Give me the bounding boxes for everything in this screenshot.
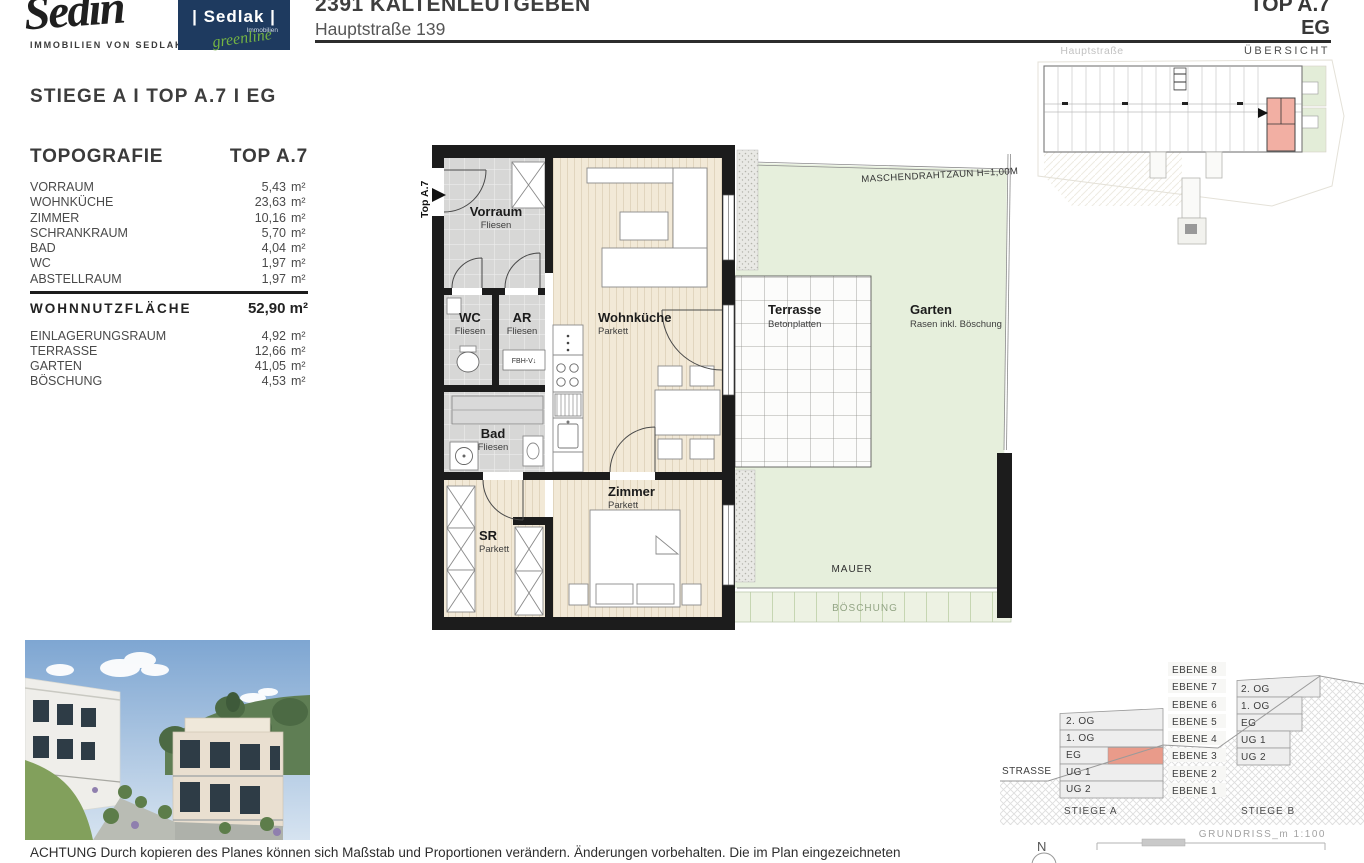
stiege-a-label: STIEGE A xyxy=(1064,806,1118,817)
page-subtitle: Hauptstraße 139 xyxy=(315,19,445,40)
svg-text:Parkett: Parkett xyxy=(479,544,509,555)
svg-text:Parkett: Parkett xyxy=(608,500,638,511)
svg-text:UG 1: UG 1 xyxy=(1241,735,1266,746)
plan-document-page: Sedin IMMOBILIEN VON SEDLAK | Sedlak | I… xyxy=(0,0,1364,863)
nightstand xyxy=(569,584,588,605)
sedin-tagline: IMMOBILIEN VON SEDLAK xyxy=(30,40,183,50)
svg-text:EG: EG xyxy=(1066,750,1081,761)
terrace-patch xyxy=(1302,82,1318,94)
svg-text:2. OG: 2. OG xyxy=(1066,716,1095,727)
table-row: ABSTELLRAUM1,97m² xyxy=(30,272,308,287)
vorraum-label: Vorraum xyxy=(470,204,523,219)
svg-text:EBENE 5: EBENE 5 xyxy=(1172,717,1217,728)
entry-label: Top A.7 xyxy=(420,181,431,218)
table-row: SCHRANKRAUM5,70m² xyxy=(30,226,308,241)
svg-text:UG 2: UG 2 xyxy=(1066,784,1091,795)
bad-label: Bad xyxy=(481,426,506,441)
strasse-label: STRASSE xyxy=(1002,766,1051,777)
wardrobe xyxy=(512,162,545,208)
header-rule xyxy=(315,40,1331,43)
site-overview-map xyxy=(1032,56,1364,254)
svg-text:Betonplatten: Betonplatten xyxy=(768,319,821,330)
extra-area-list: EINLAGERUNGSRAUM4,92m² TERRASSE12,66m² G… xyxy=(30,329,308,390)
svg-text:EBENE 4: EBENE 4 xyxy=(1172,734,1217,745)
scale-bar xyxy=(1097,839,1325,850)
svg-text:1. OG: 1. OG xyxy=(1066,733,1095,744)
level-section-diagram: EBENE 8 EBENE 7 EBENE 6 EBENE 5 EBENE 4 … xyxy=(1000,653,1364,863)
terrace-patch xyxy=(1302,116,1318,128)
highlighted-level-eg xyxy=(1108,748,1163,765)
svg-text:UG 2: UG 2 xyxy=(1241,752,1266,763)
svg-text:EBENE 7: EBENE 7 xyxy=(1172,682,1217,693)
table-row: EINLAGERUNGSRAUM4,92m² xyxy=(30,329,308,344)
room-area-list: VORRAUM5,43m² WOHNKÜCHE23,63m² ZIMMER10,… xyxy=(30,180,308,287)
svg-text:Fliesen: Fliesen xyxy=(455,326,486,337)
scale-label: GRUNDRISS_m 1:100 xyxy=(1199,829,1326,840)
svg-text:UG 1: UG 1 xyxy=(1066,767,1091,778)
svg-text:Fliesen: Fliesen xyxy=(507,326,538,337)
svg-text:Fliesen: Fliesen xyxy=(478,442,509,453)
nightstand xyxy=(682,584,701,605)
table-row: ZIMMER10,16m² xyxy=(30,211,308,226)
north-compass-icon: N xyxy=(1032,839,1056,863)
terrasse-label: Terrasse xyxy=(768,302,821,317)
svg-text:1. OG: 1. OG xyxy=(1241,701,1270,712)
ar-floor xyxy=(499,295,545,385)
sofa-seat xyxy=(602,248,707,287)
table-row: VORRAUM5,43m² xyxy=(30,180,308,195)
garden-patch xyxy=(1300,108,1326,152)
topografie-table: TOPOGRAFIE TOP A.7 VORRAUM5,43m² WOHNKÜC… xyxy=(30,146,308,390)
windows xyxy=(723,195,734,585)
building-outline xyxy=(1044,66,1302,152)
svg-text:Rasen inkl. Böschung: Rasen inkl. Böschung xyxy=(910,319,1002,330)
wc-label: WC xyxy=(459,310,481,325)
sedin-logo: Sedin xyxy=(22,0,125,41)
sr-label: SR xyxy=(479,528,498,543)
stiege-heading: STIEGE A I TOP A.7 I EG xyxy=(30,86,277,108)
right-building xyxy=(173,718,283,827)
floorplan: Top A.7 Vorraum Fliesen WC Fliesen AR xyxy=(420,140,1020,635)
sedlak-logo-name: | Sedlak | xyxy=(178,7,290,27)
kitchen-counter xyxy=(553,325,583,472)
table-row: BÖSCHUNG4,53m² xyxy=(30,374,308,389)
table-row: WC1,97m² xyxy=(30,256,308,271)
garten-label: Garten xyxy=(910,302,952,317)
svg-text:Fliesen: Fliesen xyxy=(481,220,512,231)
wohnkueche-label: Wohnküche xyxy=(598,310,671,325)
table-title: TOPOGRAFIE xyxy=(30,146,163,168)
washbasin xyxy=(523,436,543,466)
mauer-label: MAUER xyxy=(831,564,872,575)
svg-text:EBENE 1: EBENE 1 xyxy=(1172,786,1217,797)
page-title: 2391 KALTENLEUTGEBEN xyxy=(315,0,591,17)
svg-text:N: N xyxy=(1037,839,1046,854)
boeschung-label: BÖSCHUNG xyxy=(832,602,898,614)
svg-text:EBENE 8: EBENE 8 xyxy=(1172,665,1217,676)
svg-text:EBENE 3: EBENE 3 xyxy=(1172,751,1217,762)
total-row: WOHNNUTZFLÄCHE 52,90 m² xyxy=(30,294,308,322)
table-unit-col: TOP A.7 xyxy=(230,146,308,168)
svg-text:EBENE 2: EBENE 2 xyxy=(1172,769,1217,780)
gravel-strip xyxy=(737,150,758,270)
table-row: BAD4,04m² xyxy=(30,241,308,256)
svg-text:2. OG: 2. OG xyxy=(1241,684,1270,695)
table-row: TERRASSE12,66m² xyxy=(30,344,308,359)
unit-label: TOP A.7 xyxy=(1250,0,1330,17)
ar-label: AR xyxy=(513,310,532,325)
table-row: GARTEN41,05m² xyxy=(30,359,308,374)
building-rendering-image xyxy=(25,640,310,840)
disclaimer-text: ACHTUNG Durch kopieren des Planes können… xyxy=(30,845,990,860)
fbh-label: FBH-V↓ xyxy=(512,358,537,365)
stiege-b-label: STIEGE B xyxy=(1241,806,1295,817)
zimmer-label: Zimmer xyxy=(608,484,655,499)
gravel-strip xyxy=(735,470,755,582)
sideboard xyxy=(587,168,673,183)
staircase xyxy=(1174,68,1186,90)
sedlak-logo: | Sedlak | Immobilien greenline xyxy=(178,0,290,50)
svg-text:Parkett: Parkett xyxy=(598,326,628,337)
svg-text:EBENE 6: EBENE 6 xyxy=(1172,700,1217,711)
table-row: WOHNKÜCHE23,63m² xyxy=(30,195,308,210)
floor-label: EG xyxy=(1301,17,1330,40)
boundary-wall xyxy=(997,453,1012,618)
svg-text:EG: EG xyxy=(1241,718,1256,729)
coffee-table xyxy=(620,212,668,240)
